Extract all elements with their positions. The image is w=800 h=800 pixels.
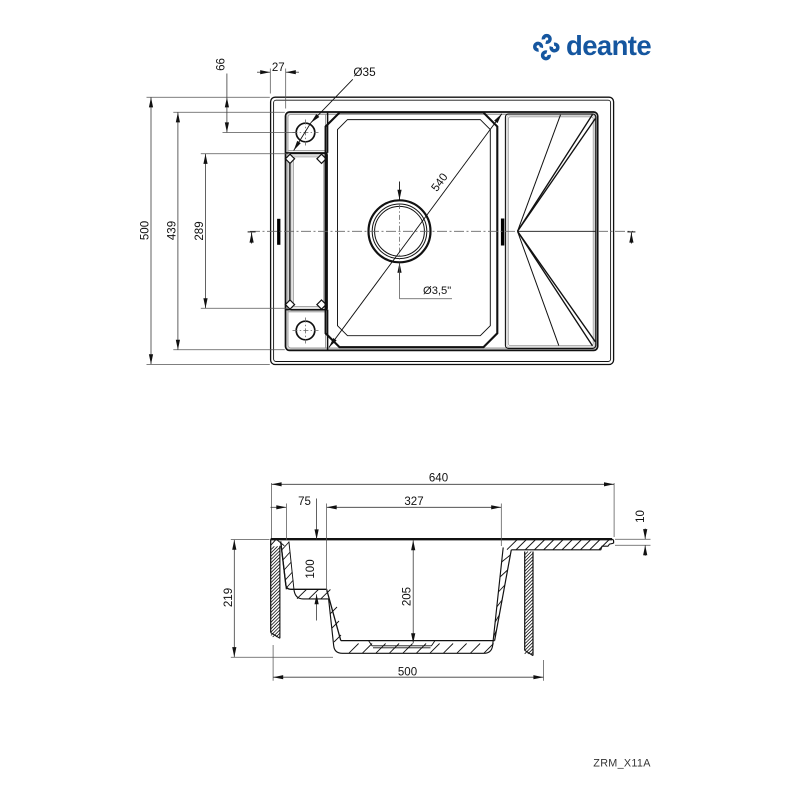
svg-text:500: 500 — [398, 666, 417, 678]
svg-text:439: 439 — [166, 221, 178, 240]
svg-text:10: 10 — [635, 510, 647, 523]
svg-text:219: 219 — [223, 588, 235, 607]
svg-text:ZRM_X11A: ZRM_X11A — [593, 757, 651, 769]
svg-text:Ø35: Ø35 — [353, 65, 376, 79]
svg-text:327: 327 — [404, 496, 423, 508]
svg-text:75: 75 — [298, 496, 311, 508]
svg-text:Ø3,5": Ø3,5" — [423, 285, 451, 297]
svg-text:289: 289 — [194, 221, 206, 240]
svg-text:100: 100 — [305, 559, 317, 578]
svg-text:deante: deante — [566, 30, 651, 61]
svg-text:205: 205 — [402, 587, 414, 606]
svg-text:66: 66 — [215, 58, 227, 71]
svg-text:640: 640 — [429, 473, 448, 485]
svg-text:27: 27 — [272, 62, 285, 74]
svg-text:500: 500 — [140, 221, 152, 240]
